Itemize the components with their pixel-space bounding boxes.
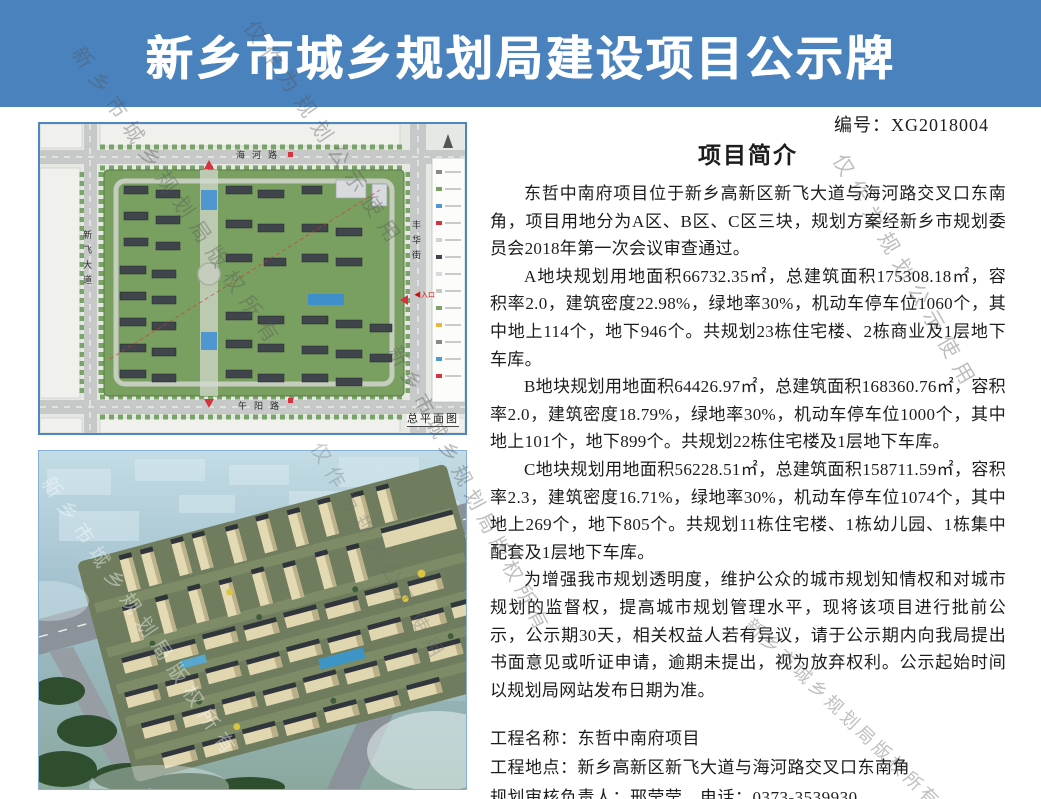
aerial-render-drawing	[39, 451, 466, 789]
doc-number-value: XG2018004	[891, 115, 989, 135]
header-banner: 新乡市城乡规划局建设项目公示牌	[0, 0, 1041, 107]
site-plan-image: 海河路 新飞大道 午阳路 丰华街 ◀入口 总平面图	[38, 122, 467, 435]
page-title: 新乡市城乡规划局建设项目公示牌	[0, 0, 1041, 89]
project-intro-section: 项目简介 东哲中南府项目位于新乡高新区新飞大道与海河路交叉口东南角，项目用地分为…	[490, 136, 1006, 799]
notice-board: 新乡市城乡规划局建设项目公示牌 编号：XG2018004	[0, 0, 1041, 799]
doc-number-label: 编号：	[834, 115, 891, 135]
info-project-name: 工程名称：东哲中南府项目	[490, 724, 1006, 753]
site-plan-drawing	[40, 124, 465, 433]
project-info: 工程名称：东哲中南府项目 工程地点：新乡高新区新飞大道与海河路交叉口东南角 规划…	[490, 724, 1006, 799]
block-a-paragraph: A地块规划用地面积66732.35㎡，总建筑面积175308.18㎡，容积率2.…	[490, 263, 1006, 373]
road-label-xinfei: 新飞大道	[82, 230, 91, 290]
info-project-location: 工程地点：新乡高新区新飞大道与海河路交叉口东南角	[490, 753, 1006, 782]
info-review-contact: 规划审核负责人：邢莹莹 电话：0373-3539930	[490, 783, 1006, 799]
road-label-fenghua: 丰华街	[411, 220, 420, 265]
site-plan-caption: 总平面图	[407, 414, 459, 427]
road-label-wuyang: 午阳路	[238, 402, 286, 411]
road-label-haihe: 海河路	[236, 151, 284, 160]
entrance-label: ◀入口	[414, 292, 435, 299]
block-b-paragraph: B地块规划用地面积64426.97㎡，总建筑面积168360.76㎡，容积率2.…	[490, 373, 1006, 456]
section-heading: 项目简介	[490, 136, 1006, 170]
block-c-paragraph: C地块规划用地面积56228.51㎡，总建筑面积158711.59㎡，容积率2.…	[490, 456, 1006, 566]
intro-paragraph: 东哲中南府项目位于新乡高新区新飞大道与海河路交叉口东南角，项目用地分为A区、B区…	[490, 180, 1006, 263]
aerial-render-image	[38, 450, 467, 790]
publicity-paragraph: 为增强我市规划透明度，维护公众的城市规划知情权和对城市规划的监督权，提高城市规划…	[490, 566, 1006, 704]
doc-number: 编号：XG2018004	[834, 111, 989, 137]
